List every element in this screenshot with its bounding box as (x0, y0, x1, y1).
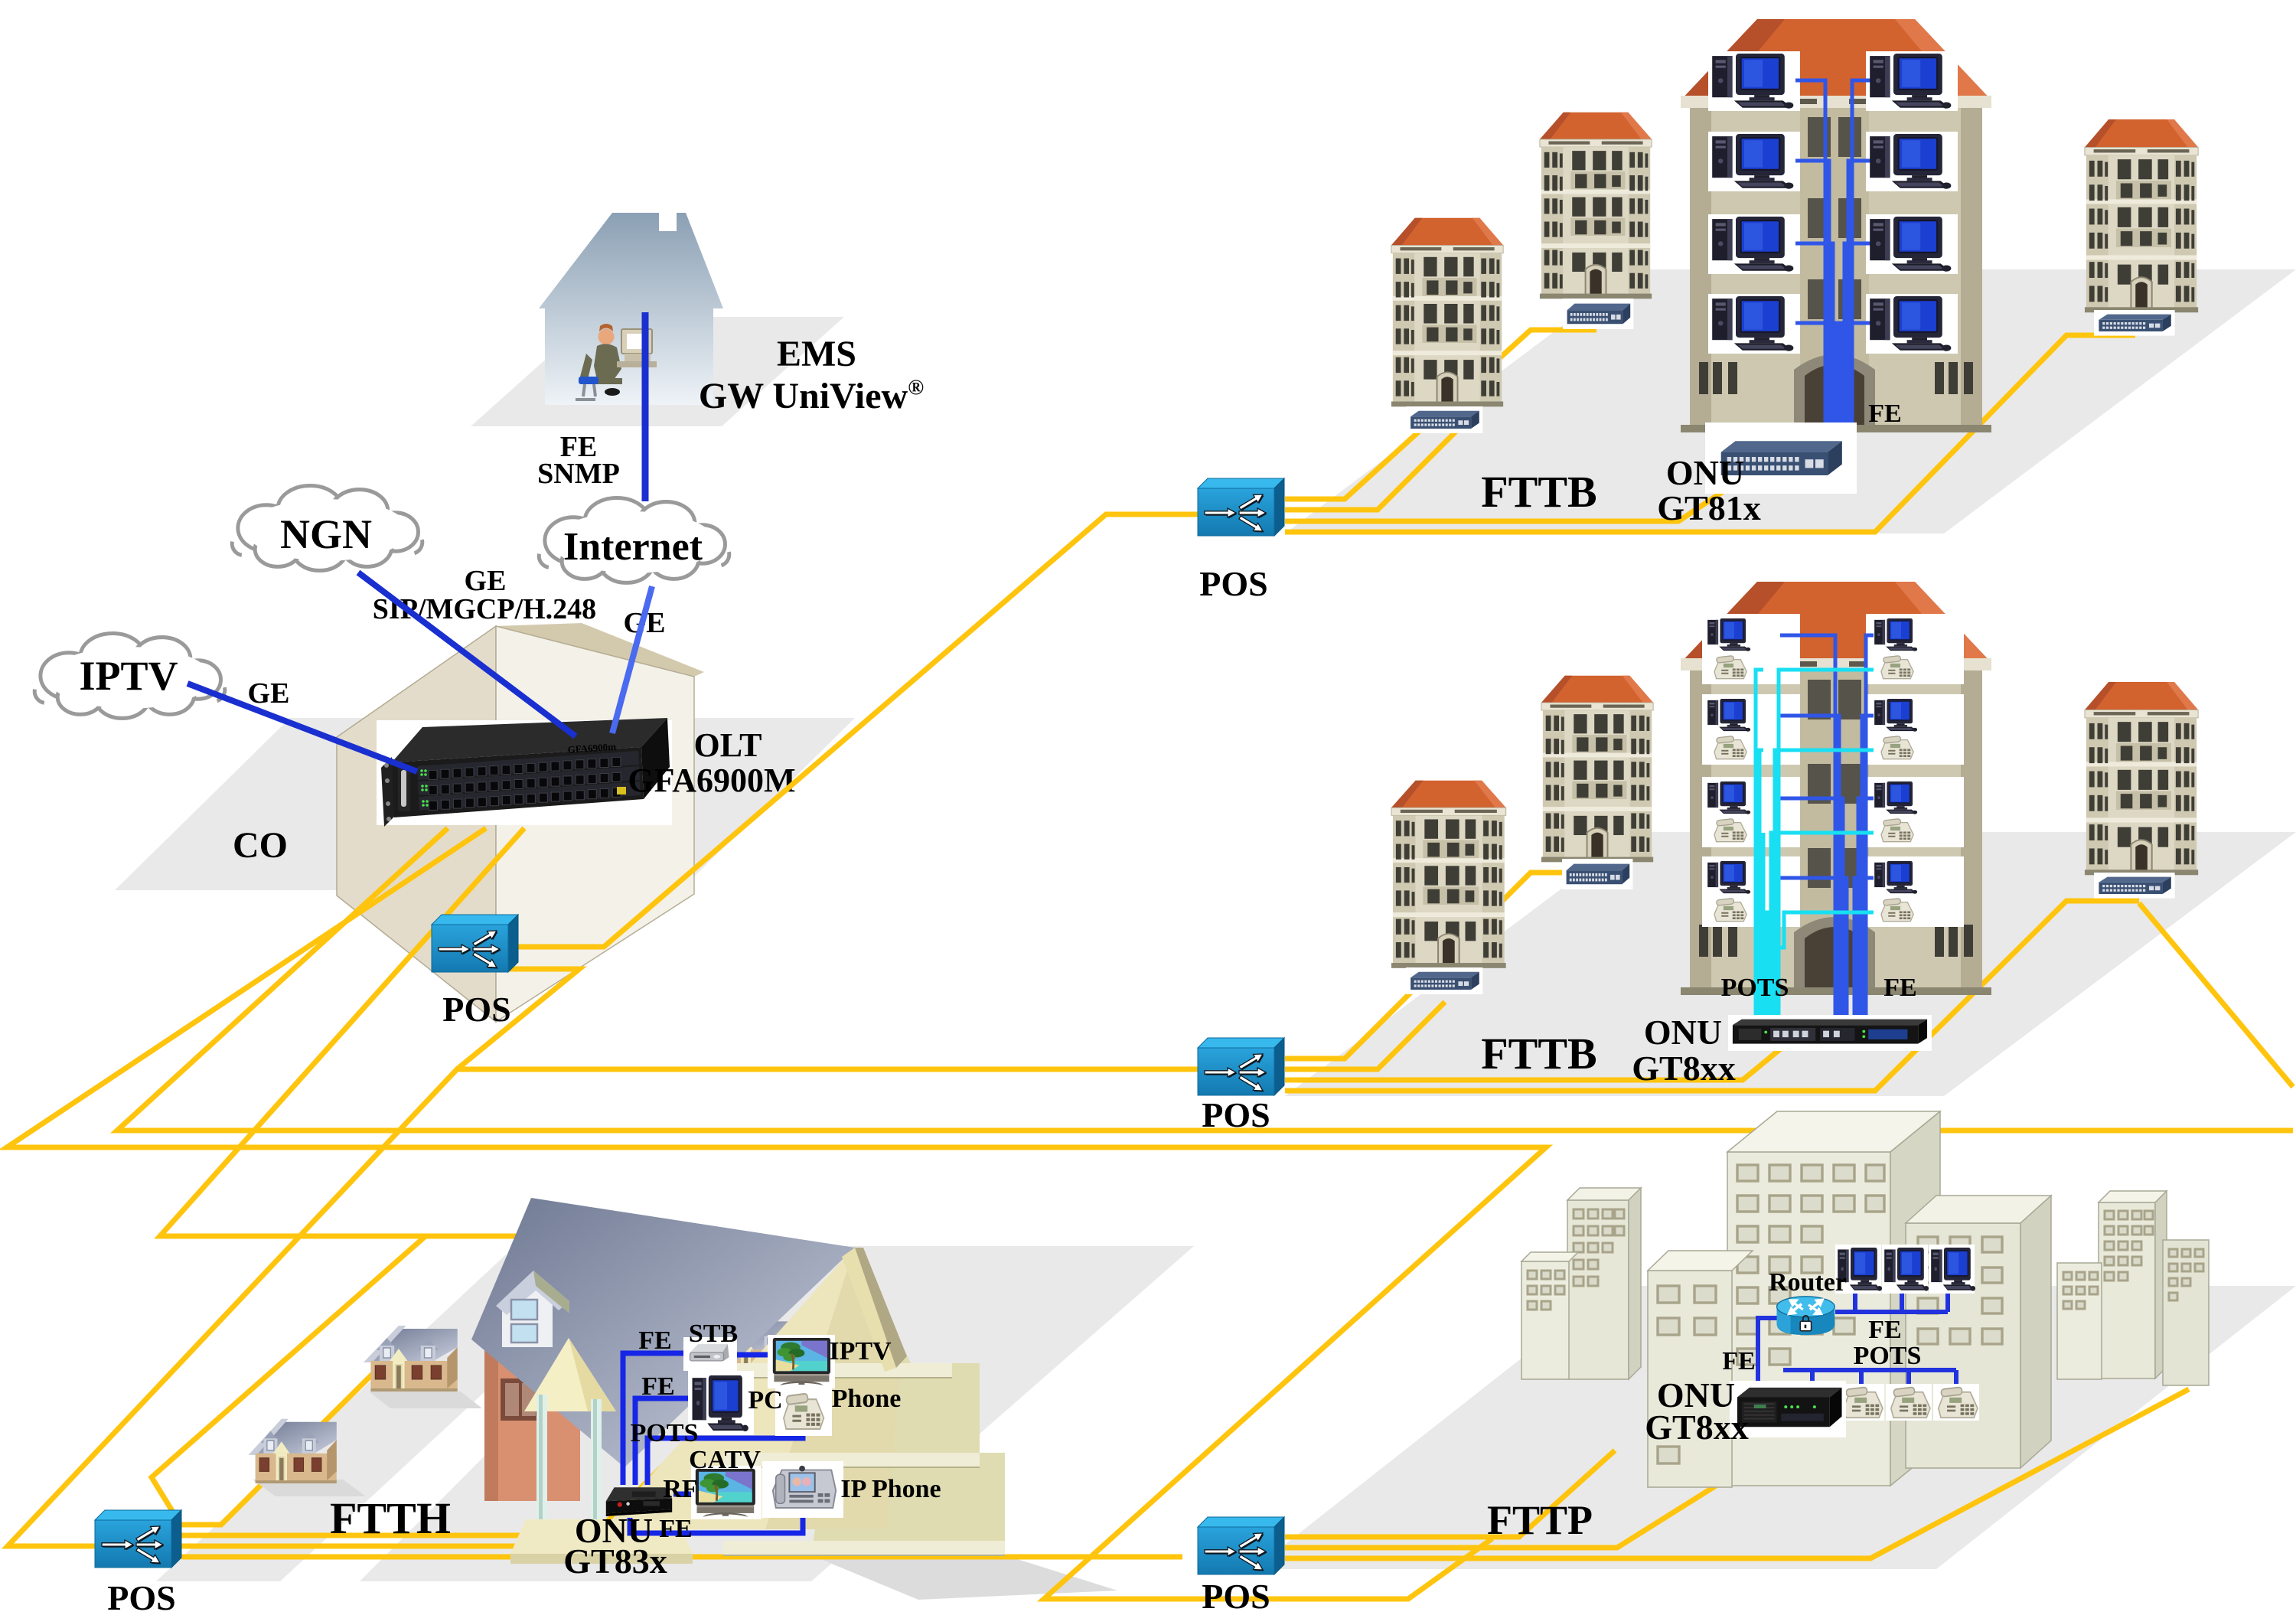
svg-text:IPTV: IPTV (79, 653, 178, 699)
svg-text:Phone: Phone (832, 1385, 902, 1413)
svg-text:GW UniView®: GW UniView® (699, 376, 924, 416)
svg-text:ONU: ONU (1666, 453, 1744, 492)
svg-text:POTS: POTS (1854, 1342, 1922, 1370)
svg-text:POS: POS (1202, 1095, 1270, 1134)
svg-text:GFA6900M: GFA6900M (628, 762, 795, 799)
svg-text:POTS: POTS (1721, 974, 1789, 1002)
svg-text:POS: POS (1199, 564, 1267, 603)
svg-text:FTTB: FTTB (1481, 467, 1597, 517)
svg-text:GT8xx: GT8xx (1645, 1408, 1748, 1447)
svg-text:ONU: ONU (1644, 1013, 1722, 1052)
svg-text:FE: FE (1868, 1316, 1901, 1344)
svg-text:CATV: CATV (689, 1446, 761, 1474)
svg-text:GT81x: GT81x (1657, 488, 1760, 527)
svg-text:FE: FE (1868, 400, 1901, 428)
svg-text:GT83x: GT83x (563, 1542, 667, 1581)
svg-text:IPTV: IPTV (829, 1337, 892, 1365)
svg-text:EMS: EMS (777, 334, 856, 374)
svg-text:GE: GE (248, 677, 290, 710)
svg-text:Router: Router (1769, 1268, 1847, 1297)
svg-text:Internet: Internet (563, 525, 703, 569)
svg-text:PC: PC (748, 1386, 782, 1414)
svg-text:FE: FE (1883, 974, 1916, 1002)
svg-text:GT8xx: GT8xx (1632, 1049, 1735, 1088)
svg-text:STB: STB (689, 1320, 738, 1348)
svg-text:CO: CO (233, 825, 288, 866)
svg-text:FE: FE (638, 1326, 671, 1355)
svg-text:SNMP: SNMP (537, 458, 620, 490)
svg-text:FE: FE (659, 1515, 692, 1543)
svg-text:FE: FE (1722, 1347, 1755, 1375)
svg-text:OLT: OLT (694, 726, 762, 764)
svg-text:POS: POS (442, 990, 510, 1029)
svg-text:RF: RF (663, 1475, 697, 1503)
svg-text:IP Phone: IP Phone (840, 1475, 941, 1503)
svg-text:FE: FE (641, 1372, 674, 1401)
svg-text:GE: GE (465, 565, 507, 597)
svg-text:FTTB: FTTB (1481, 1029, 1597, 1078)
svg-text:POS: POS (107, 1578, 175, 1611)
svg-text:POTS: POTS (631, 1419, 699, 1447)
svg-text:POS: POS (1202, 1577, 1270, 1611)
svg-text:FTTH: FTTH (330, 1493, 451, 1543)
svg-text:FTTP: FTTP (1487, 1497, 1593, 1543)
svg-text:NGN: NGN (280, 511, 372, 557)
